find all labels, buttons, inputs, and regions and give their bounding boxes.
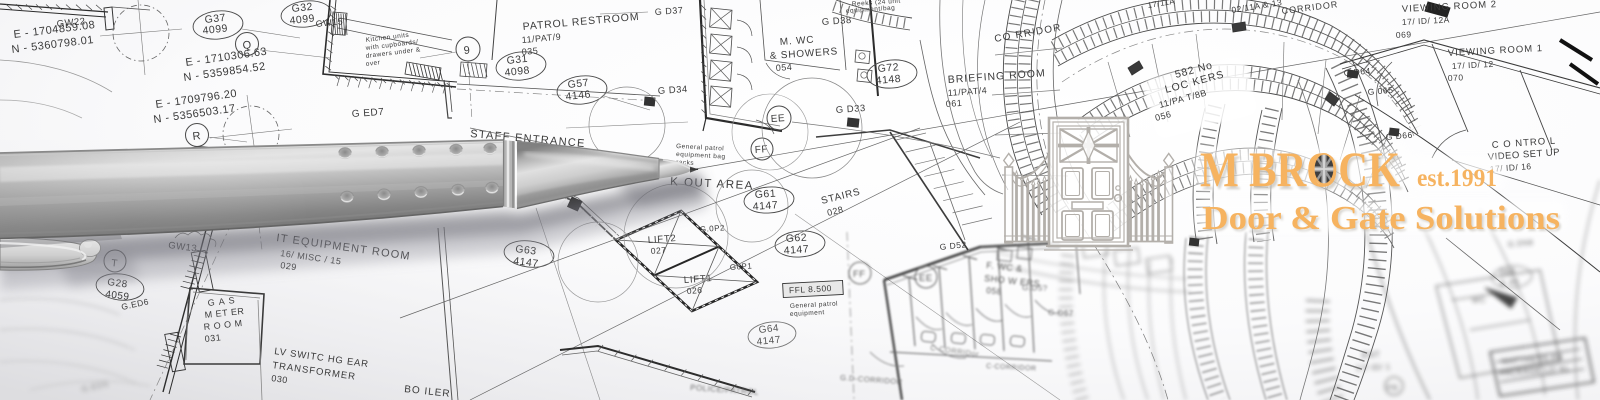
svg-text:G.D67: G.D67: [1048, 308, 1074, 318]
svg-text:G ED7: G ED7: [351, 107, 384, 120]
svg-text:4147: 4147: [752, 199, 778, 213]
svg-text:068: 068: [1499, 266, 1515, 277]
svg-text:069: 069: [1396, 29, 1412, 40]
svg-text:070: 070: [1448, 72, 1464, 83]
svg-text:G D33: G D33: [835, 103, 866, 116]
svg-text:G D34: G D34: [657, 84, 688, 97]
svg-text:WC: WC: [1472, 295, 1487, 305]
svg-text:R: R: [192, 130, 202, 143]
svg-text:FF: FF: [754, 144, 768, 156]
svg-text:EE: EE: [919, 273, 933, 284]
svg-text:LIFT2: LIFT2: [647, 233, 677, 246]
svg-text:EE: EE: [770, 113, 785, 125]
svg-text:031: 031: [204, 332, 221, 344]
svg-text:Door & Gate Solutions: Door & Gate Solutions: [1202, 200, 1560, 237]
svg-text:est.1991: est.1991: [1417, 165, 1497, 192]
svg-text:& 45: & 45: [1499, 276, 1519, 288]
svg-text:G D37: G D37: [654, 5, 683, 17]
svg-text:G.D5?: G.D5?: [1022, 283, 1048, 293]
svg-text:027: 027: [650, 245, 666, 256]
svg-text:4147: 4147: [783, 243, 809, 257]
svg-text:ENT: ENT: [1362, 349, 1381, 360]
svg-text:058: 058: [986, 285, 1003, 297]
svg-text:17/ ID/ 1: 17/ ID/ 1: [1356, 362, 1391, 373]
svg-text:PB: PB: [1387, 383, 1398, 392]
svg-text:4148: 4148: [875, 73, 901, 87]
svg-text:M BROCK: M BROCK: [1200, 141, 1400, 197]
svg-text:Q: Q: [242, 39, 252, 52]
svg-text:FF: FF: [853, 269, 866, 280]
svg-text:9: 9: [463, 44, 471, 57]
